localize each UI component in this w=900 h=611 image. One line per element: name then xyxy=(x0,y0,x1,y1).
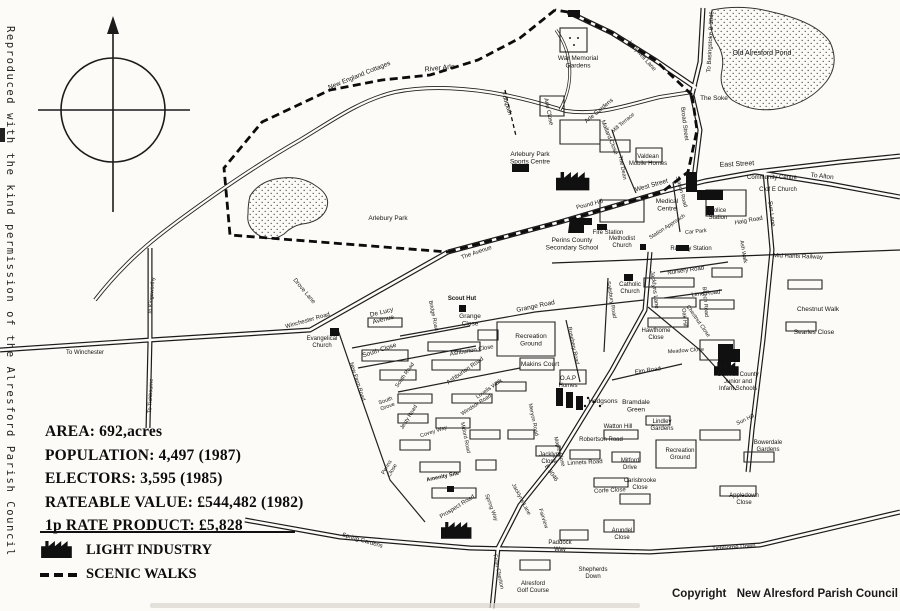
sun-hill-school-building xyxy=(718,344,740,366)
map-label: Meadow Close xyxy=(668,347,705,356)
map-label: Old Alresford Pond xyxy=(733,50,792,57)
map-label: GrangeClose xyxy=(459,313,481,327)
map-label: The Soke xyxy=(700,95,728,102)
map-label: Rosebery Road xyxy=(566,326,580,365)
map-label: Mid Hants Railway xyxy=(773,253,823,261)
railway-line xyxy=(552,250,900,263)
scenic-walk-dash-icon xyxy=(40,571,86,579)
map-label: LindleyGardens xyxy=(650,419,673,432)
map-label: Community Centre xyxy=(747,175,798,181)
map-label: Broad Street xyxy=(679,107,689,141)
map-label: Tichborne Down xyxy=(712,543,756,552)
buildings xyxy=(330,164,740,492)
map-label: The Dean xyxy=(617,155,628,180)
map-label: Makins Court xyxy=(521,361,559,368)
map-label: To Basingstoke B 3046 xyxy=(706,10,715,72)
map-label: Fairview xyxy=(537,508,549,529)
map-label: Sun Hill CountyJunior andInfant Schools xyxy=(717,372,758,392)
map-label: De LucyAvenue xyxy=(369,306,396,326)
stat-line-rateable: RATEABLE VALUE: £544,482 (1982) xyxy=(45,491,304,515)
map-label: BramdaleGreen xyxy=(622,399,650,413)
light-industry-icon xyxy=(556,172,589,190)
map-label: Watton Hill xyxy=(604,424,633,430)
map-label: Jacklyns Lane xyxy=(510,483,532,517)
map-label: MedicalCentre xyxy=(656,198,679,212)
church-community-centre-buildings xyxy=(686,172,723,200)
map-label: Nursery Road xyxy=(667,265,704,276)
scanned-parish-map-page: Reproduced with the kind permission of t… xyxy=(0,0,900,611)
map-label: C of E Church xyxy=(759,187,797,193)
legend-divider xyxy=(40,531,295,533)
map-label: PoliceStation xyxy=(709,208,728,221)
map-label: Haig Road xyxy=(734,216,763,227)
map-label: Meryon Road xyxy=(527,403,540,437)
stat-line-area: AREA: 692,acres xyxy=(45,420,304,444)
map-label: JacklynClose xyxy=(539,452,559,465)
map-label: RecreationGround xyxy=(665,448,694,461)
scan-edge-mark xyxy=(0,128,5,142)
map-label: ShepherdsDown xyxy=(578,567,607,580)
map-label: Beech Road xyxy=(701,287,710,318)
map-label: Oak Hill xyxy=(680,308,688,328)
map-legend: LIGHT INDUSTRY SCENIC WALKS xyxy=(40,531,300,590)
map-label: CatholicChurch xyxy=(619,282,641,295)
copyright-label: Copyright xyxy=(672,588,726,600)
map-label: South Road xyxy=(394,362,416,389)
map-label: East Street xyxy=(719,160,754,169)
map-label: Railway Station xyxy=(670,246,711,252)
map-label: Mill Terrace xyxy=(611,112,636,135)
map-label: AlresfordGolf Course xyxy=(517,581,550,594)
evangelical-church-building xyxy=(330,328,339,336)
map-label: Covey Way xyxy=(419,425,448,439)
map-label: ArundelClose xyxy=(612,528,633,541)
stat-line-population: POPULATION: 4,497 (1987) xyxy=(45,444,304,468)
factory-icon xyxy=(40,541,86,559)
copyright-line: Copyright New Alresford Parish Council xyxy=(672,588,898,600)
map-label: MethodistChurch xyxy=(609,236,635,249)
map-label: Arle Close xyxy=(542,98,554,127)
map-label: Linnets Road xyxy=(567,459,603,467)
map-label: MitfordDrive xyxy=(621,458,639,471)
map-label: AppledownClose xyxy=(729,493,759,506)
map-label: New Farm Road xyxy=(348,362,366,402)
map-label: SouthGrove xyxy=(378,396,396,413)
map-label: To Winchester xyxy=(66,350,104,356)
map-label: Jesty Road xyxy=(399,404,419,431)
legend-item-light-industry: LIGHT INDUSTRY xyxy=(40,541,300,559)
map-label: Jacklyns Lane xyxy=(649,271,660,310)
old-alresford-pond xyxy=(711,7,835,109)
map-label: Perins CountySecondary School xyxy=(546,237,599,251)
map-label: Drove Lane xyxy=(291,278,316,306)
map-label: Ash Walk xyxy=(738,240,748,264)
arlebury-lake xyxy=(248,178,328,239)
map-label: RecreationGround xyxy=(515,333,547,347)
amenity-site-marker xyxy=(447,486,454,492)
map-label: War MemorialGardens xyxy=(558,55,599,69)
scan-artifact xyxy=(150,603,640,608)
light-industry-icon xyxy=(441,522,471,539)
legend-item-scenic-walks: SCENIC WALKS xyxy=(40,566,300,583)
copyright-holder: New Alresford Parish Council xyxy=(737,588,898,600)
map-label: Spring Way xyxy=(483,493,498,522)
catholic-church-building xyxy=(624,274,633,281)
map-label: Car Park xyxy=(685,228,707,236)
map-label: Ashburton Road xyxy=(446,356,485,386)
map-label: CarisbrookeClose xyxy=(624,478,657,491)
map-label: Scout Hut xyxy=(448,296,476,302)
light-industry-layer xyxy=(441,172,739,539)
map-label: Station Approach xyxy=(648,213,686,241)
stat-line-electors: ELECTORS: 3,595 (1985) xyxy=(45,467,304,491)
map-label: EvangelicalChurch xyxy=(307,336,338,349)
map-label: BowerdaleGardens xyxy=(754,440,783,453)
map-label: Arlebury ParkSports Centre xyxy=(510,151,550,165)
map-label: ValdeanMobile Homes xyxy=(629,154,667,167)
map-label: Searles Close xyxy=(794,329,835,336)
legend-label: LIGHT INDUSTRY xyxy=(86,542,212,559)
methodist-church-building xyxy=(640,244,646,250)
map-label: New England Cottages xyxy=(327,60,392,92)
legend-label: SCENIC WALKS xyxy=(86,566,197,583)
parish-statistics: AREA: 692,acres POPULATION: 4,497 (1987)… xyxy=(45,420,304,538)
map-label: Arlebury Park xyxy=(368,215,408,222)
map-label: Elm Road xyxy=(634,366,661,376)
map-label: Chestnut Walk xyxy=(797,306,840,313)
compass-icon xyxy=(38,16,190,212)
perins-school-building xyxy=(568,218,592,233)
hodgsons-building xyxy=(556,388,583,410)
map-label: To Tichbourne xyxy=(147,379,155,414)
map-label: Mitford Road xyxy=(459,422,471,454)
map-label: O.A.PHomes xyxy=(558,376,577,389)
river-arle xyxy=(95,30,692,300)
map-label: HawthorneClose xyxy=(641,328,671,341)
map-label: Bridge Road xyxy=(427,300,439,331)
scout-hut-building xyxy=(459,305,466,312)
map-label: Robertson Road xyxy=(579,437,623,443)
map-label: Hodgsons xyxy=(588,398,618,405)
